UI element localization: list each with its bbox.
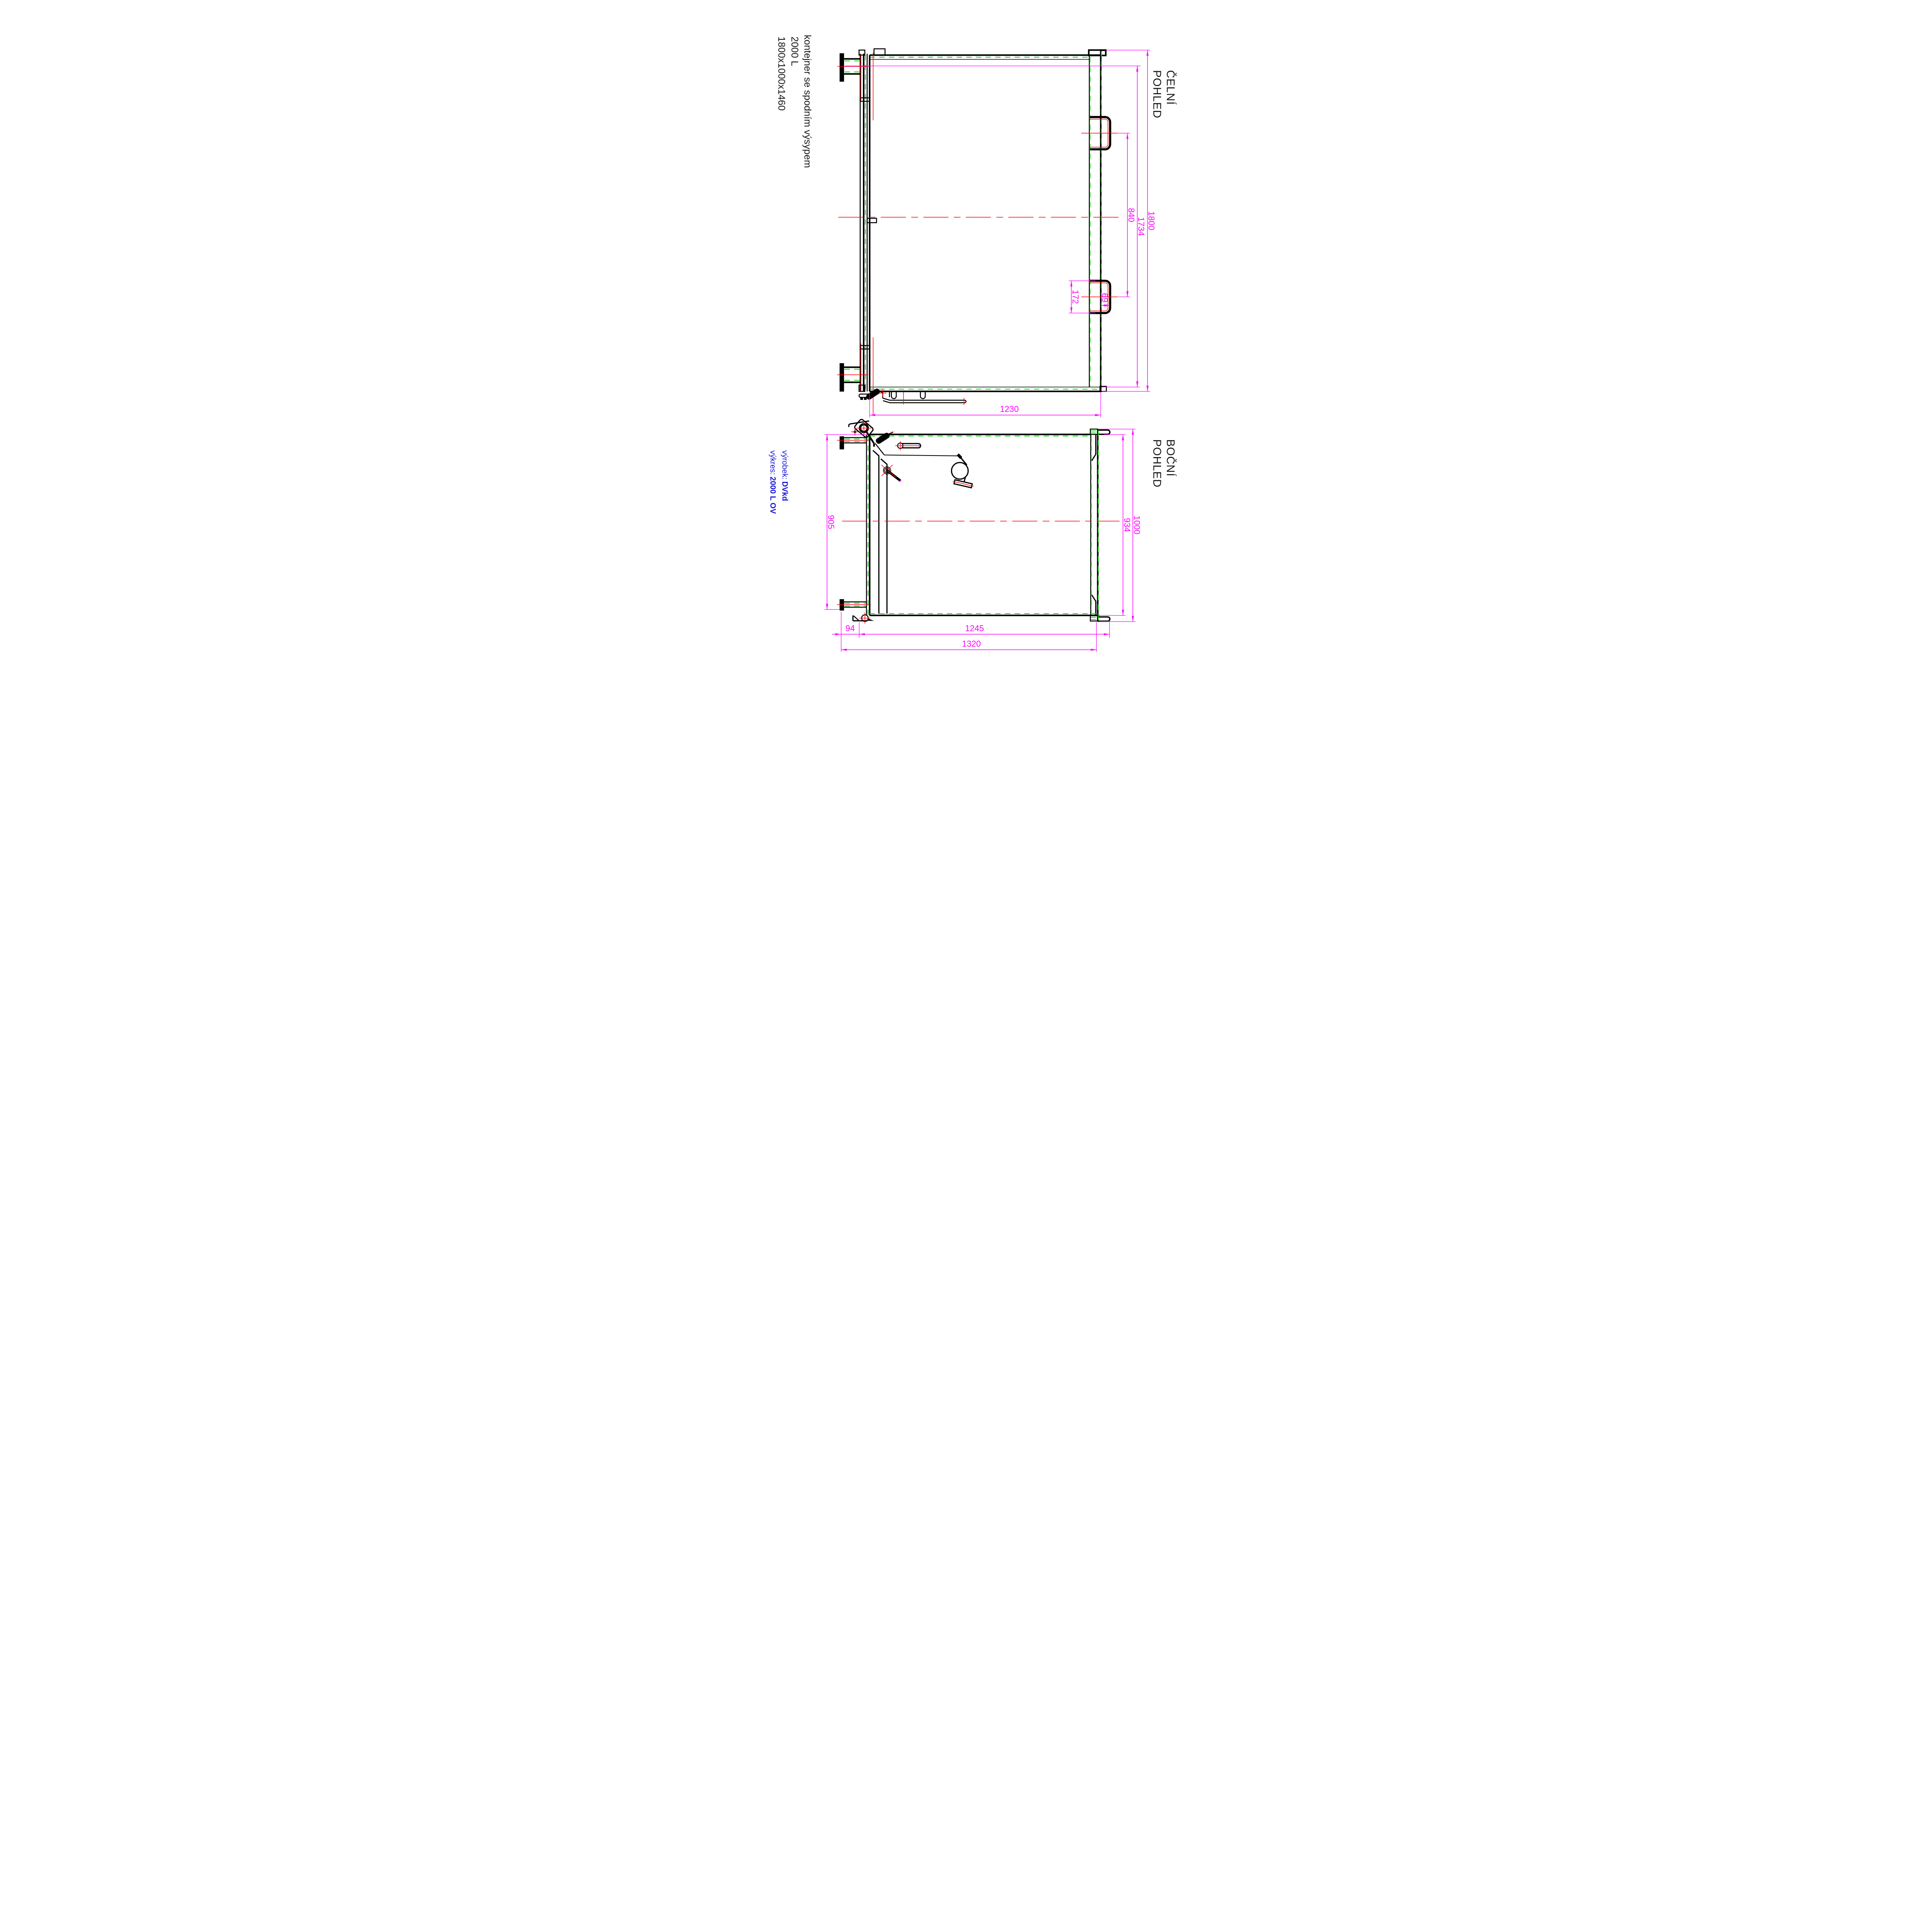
front-dimensions: 840 1734 1800 172 69 1230 xyxy=(845,50,1156,418)
side-body-outline xyxy=(866,429,1110,621)
side-view-label-line2: POHLED xyxy=(1150,439,1163,488)
side-chute-panels xyxy=(873,450,887,614)
side-view-label-line1: BOČNÍ xyxy=(1164,439,1177,477)
title-line3: 1800x1000x1460 xyxy=(776,37,787,111)
dim-trunnion-to-bottom: 1734 xyxy=(1136,217,1146,236)
front-hidden-lines xyxy=(865,51,1101,391)
title-line1: kontejner se spodním výsypem xyxy=(802,35,813,168)
front-door-assembly xyxy=(859,50,876,415)
side-trunnion-bottom xyxy=(837,599,868,611)
dim-body-width: 1245 xyxy=(965,624,984,633)
dim-handle-height: 172 xyxy=(1070,290,1080,304)
dim-side-overall-width: 1320 xyxy=(962,639,981,649)
product-line: výrobek:DVkd xyxy=(781,450,789,501)
title-line2: 2000 L xyxy=(789,37,800,66)
drawing-line: výkres:2000 L OV xyxy=(768,450,777,514)
side-pivot-rod xyxy=(881,465,901,481)
annotation-block: výrobek:DVkd výkres:2000 L OV xyxy=(768,450,789,514)
front-release-mechanism xyxy=(859,388,966,405)
front-view-label-line2: POHLED xyxy=(1150,70,1163,118)
title-block: kontejner se spodním výsypem 2000 L 1800… xyxy=(776,35,813,168)
side-hidden-lines xyxy=(868,430,1098,620)
dim-front-width: 1230 xyxy=(1000,404,1019,414)
front-handle-top xyxy=(1081,117,1118,150)
side-pulley-cable xyxy=(951,453,974,488)
dim-handle-depth: 69 xyxy=(1100,293,1109,302)
cad-drawing: 840 1734 1800 172 69 1230 ČELNÍ POHLED xyxy=(718,0,1198,678)
side-latch-mechanism xyxy=(849,418,958,456)
front-handle-bottom xyxy=(1081,281,1118,313)
front-body-outline xyxy=(870,49,1106,391)
dim-overall-height: 1800 xyxy=(1147,211,1156,230)
side-view-label: BOČNÍ POHLED xyxy=(1150,439,1177,488)
dim-interior-height: 905 xyxy=(826,515,836,529)
front-view: 840 1734 1800 172 69 1230 ČELNÍ POHLED xyxy=(837,49,1178,417)
dim-side-overall-height: 1000 xyxy=(1132,515,1142,534)
side-corner-roller xyxy=(853,613,874,624)
front-view-label: ČELNÍ POHLED xyxy=(1150,70,1177,118)
front-view-label-line1: ČELNÍ xyxy=(1164,70,1177,105)
side-view: 905 934 1000 94 1245 1320 BOČNÍ POHLED xyxy=(825,418,1178,652)
drawing-sheet: 840 1734 1800 172 69 1230 ČELNÍ POHLED xyxy=(718,0,1198,678)
dim-body-height: 934 xyxy=(1122,518,1132,532)
side-trunnion-top xyxy=(837,436,868,449)
dim-handle-spacing: 840 xyxy=(1126,208,1136,222)
side-dimensions: 905 934 1000 94 1245 1320 xyxy=(825,429,1142,651)
dim-flap-offset: 94 xyxy=(846,624,855,633)
